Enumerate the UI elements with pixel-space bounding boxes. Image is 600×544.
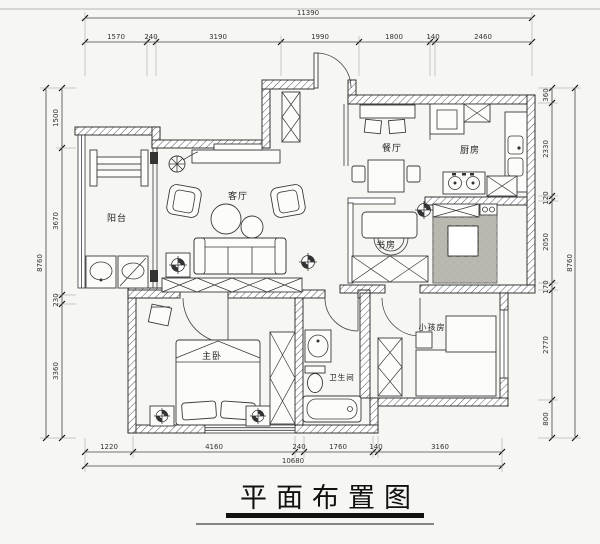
dim-right-seg: 2330 — [542, 140, 550, 158]
dining-table-icon — [352, 160, 420, 192]
entry-door — [314, 53, 351, 88]
dim-right-seg: 360 — [542, 88, 550, 101]
sideboard-icon — [360, 105, 415, 134]
study-cabinet-icon — [352, 256, 428, 282]
dim-bottom-seg: 140 — [369, 443, 382, 451]
dim-bottom-seg: 3160 — [431, 443, 449, 451]
dim-right-seg: 2050 — [542, 233, 550, 251]
dim-left-total: 8760 — [36, 254, 44, 272]
living-dining-partition — [344, 104, 348, 166]
dim-top-seg: 240 — [144, 33, 157, 41]
toilet-icon — [305, 366, 325, 393]
kitchen-counter-icon — [430, 104, 464, 134]
room-label-balcony: 阳台 — [107, 212, 127, 224]
kitchen-cabinet-icon — [487, 176, 517, 196]
balcony-window — [78, 135, 85, 288]
dim-right-seg: 120 — [542, 191, 550, 204]
wardrobe-icon — [270, 332, 295, 424]
dimension-bottom: 1220 4160 240 1760 140 3160 10680 — [82, 436, 505, 472]
dim-left-seg: 3670 — [52, 212, 60, 230]
stove-icon — [443, 172, 485, 194]
dim-bottom-seg: 240 — [292, 443, 305, 451]
bathroom-door — [325, 298, 358, 331]
shower-room — [433, 204, 497, 283]
nightstand-icon — [150, 406, 174, 426]
title-block: 平面布置图 — [196, 483, 434, 524]
dimension-left: 1500 3670 230 3360 8760 — [36, 85, 76, 441]
window-seat-cabinet-icon — [162, 278, 302, 292]
room-label-kids-room: 小孩房 — [419, 322, 446, 332]
washing-machine-icon — [118, 256, 148, 288]
target-symbol-icon — [299, 253, 317, 271]
dim-bottom-total: 10680 — [282, 457, 304, 465]
kids-room-window — [500, 310, 508, 378]
armchair-icon — [166, 183, 203, 218]
dim-top-seg: 1800 — [385, 33, 403, 41]
dim-top-seg: 3190 — [209, 33, 227, 41]
dim-right-total: 8760 — [566, 254, 574, 272]
kids-wardrobe-icon — [378, 338, 402, 396]
bathtub-icon — [303, 396, 361, 422]
nightstand-icon — [246, 406, 270, 426]
room-label-dining: 餐厅 — [382, 142, 402, 154]
shower-tray-icon — [448, 226, 478, 256]
room-label-bathroom: 卫生间 — [329, 372, 355, 382]
shower-cabinet-icon — [433, 204, 479, 217]
dimension-right: 360 2330 120 2050 170 2770 800 8760 — [538, 85, 581, 441]
drying-rack-icon — [90, 150, 148, 186]
master-bedroom-door — [183, 298, 228, 343]
dim-top-seg: 1570 — [107, 33, 125, 41]
title-underline-thick — [226, 513, 424, 518]
balcony-sliding-door — [150, 148, 158, 288]
dimension-top: 11390 1570 240 3190 1990 1800 140 2460 — [82, 9, 535, 76]
washbasin-icon — [86, 256, 116, 288]
dim-top-seg: 2460 — [474, 33, 492, 41]
floor-plan-page: 阳台 客厅 餐厅 厨房 书房 主卧 卫生间 小孩房 11390 1570 240… — [0, 0, 600, 544]
shoe-cabinet-icon — [282, 92, 300, 142]
floor-plan-canvas: 阳台 客厅 餐厅 厨房 书房 主卧 卫生间 小孩房 11390 1570 240… — [0, 0, 600, 544]
kids-room-door — [382, 298, 420, 336]
side-table-icon — [166, 253, 190, 277]
room-label-living: 客厅 — [228, 190, 248, 202]
dim-left-seg: 230 — [52, 293, 60, 306]
bedroom-chair-icon — [148, 303, 171, 326]
dim-top-total: 11390 — [297, 9, 319, 17]
room-label-master-bedroom: 主卧 — [202, 350, 222, 362]
extension-lines — [40, 88, 76, 438]
extension-lines — [85, 12, 532, 76]
dim-right-seg: 800 — [542, 412, 550, 425]
coffee-table-icon — [211, 204, 263, 238]
room-label-study: 书房 — [376, 239, 396, 251]
hob-circles-icon — [480, 204, 497, 215]
dim-right-seg: 2770 — [542, 336, 550, 354]
dim-left-seg: 3360 — [52, 362, 60, 380]
armchair-icon — [270, 183, 307, 218]
dim-bottom-seg: 1220 — [100, 443, 118, 451]
dim-bottom-seg: 4160 — [205, 443, 223, 451]
sofa-icon — [194, 238, 286, 274]
fridge-icon — [464, 104, 490, 122]
dim-bottom-seg: 1760 — [329, 443, 347, 451]
vanity-sink-icon — [305, 330, 331, 362]
dim-left-seg: 1500 — [52, 109, 60, 127]
dim-right-seg: 170 — [542, 280, 550, 293]
room-label-kitchen: 厨房 — [460, 144, 480, 156]
page-title: 平面布置图 — [240, 483, 420, 514]
dim-top-seg: 140 — [426, 33, 439, 41]
dim-top-seg: 1990 — [311, 33, 329, 41]
